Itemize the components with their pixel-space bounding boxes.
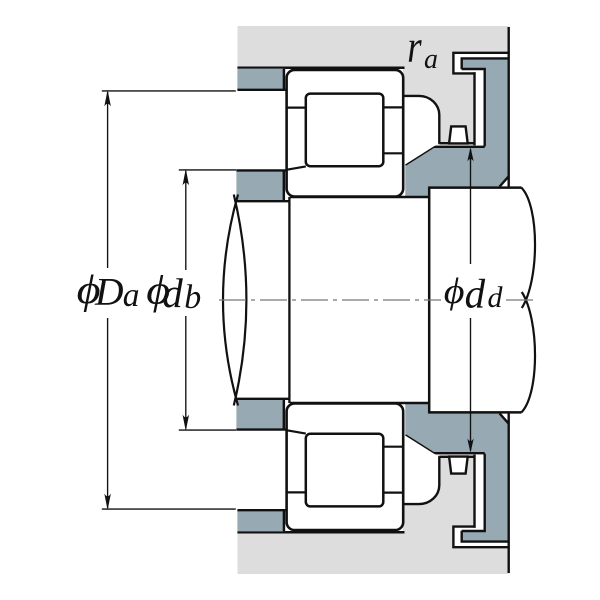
svg-text:d: d [162,270,183,316]
svg-text:ϕ: ϕ [444,272,465,311]
svg-text:d: d [488,281,504,314]
svg-text:a: a [424,44,438,75]
svg-text:d: d [465,271,486,317]
svg-text:b: b [184,279,201,316]
svg-text:r: r [407,21,422,71]
svg-text:a: a [123,277,140,314]
svg-text:D: D [94,269,124,313]
